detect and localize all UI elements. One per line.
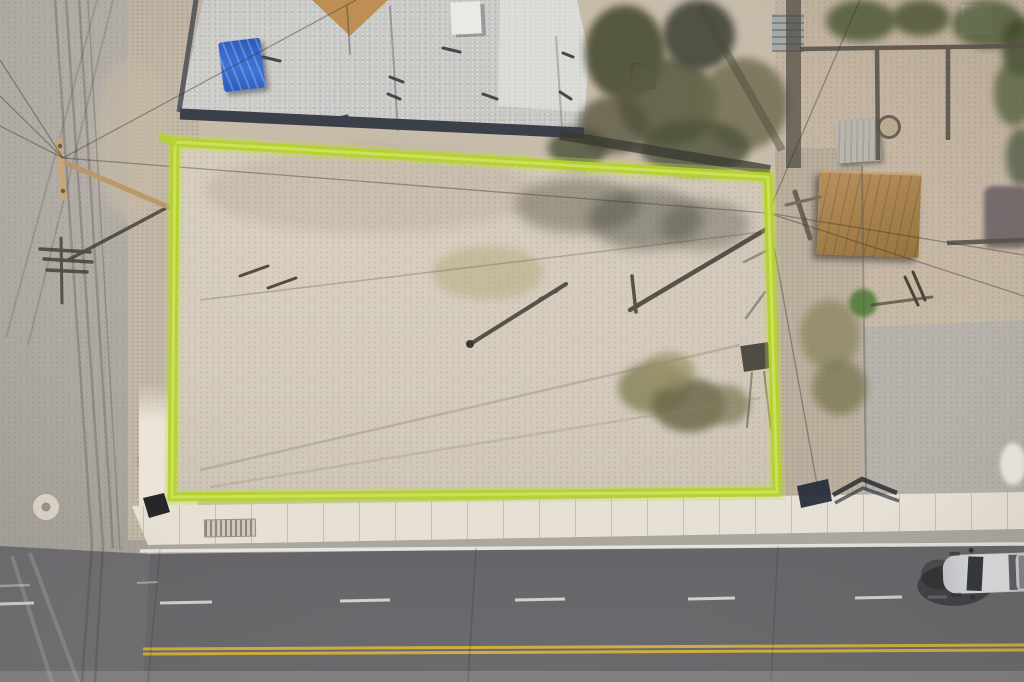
wire-shadow: [200, 231, 770, 300]
white-edge-line: [140, 544, 1024, 551]
corner-utility-pole: [786, 192, 820, 238]
vehicle-wheel: [951, 593, 962, 597]
fence-line: [862, 166, 866, 490]
pole-insulator: [58, 144, 62, 148]
vehicle-roof: [982, 554, 1011, 592]
photo-line-detail: [0, 0, 1024, 682]
worn-marking: [0, 585, 30, 586]
aerial-photo: [0, 0, 1024, 682]
vehicle-windshield: [965, 556, 984, 592]
pole-insulator: [61, 189, 65, 193]
pole-shadow-on-lot: [472, 227, 770, 343]
silver-vehicle: [916, 545, 1024, 607]
worn-marking: [137, 582, 158, 583]
pole-shadow-tip: [466, 340, 474, 348]
power-lines: [0, 0, 1024, 490]
stone-wall: [800, 46, 1024, 243]
rubble-line: [700, 6, 782, 150]
roof-seam: [556, 36, 562, 128]
pavement-streaks: [12, 553, 78, 682]
double-yellow-centerline: [143, 645, 1024, 654]
roadside-sign: [797, 479, 832, 508]
vehicle-mirror: [969, 548, 974, 553]
vehicle-wheel: [949, 552, 960, 556]
ground-debris-marks: [240, 266, 296, 288]
lot-tire-tracks: [200, 345, 760, 487]
roof-seam: [390, 6, 398, 131]
roof-vents: [263, 6, 573, 120]
manhole-center: [42, 503, 51, 512]
roof-left-edge: [179, 0, 196, 112]
asphalt-cracks: [148, 545, 778, 682]
wood-posts: [872, 272, 932, 305]
building-shadow-band: [180, 114, 584, 133]
